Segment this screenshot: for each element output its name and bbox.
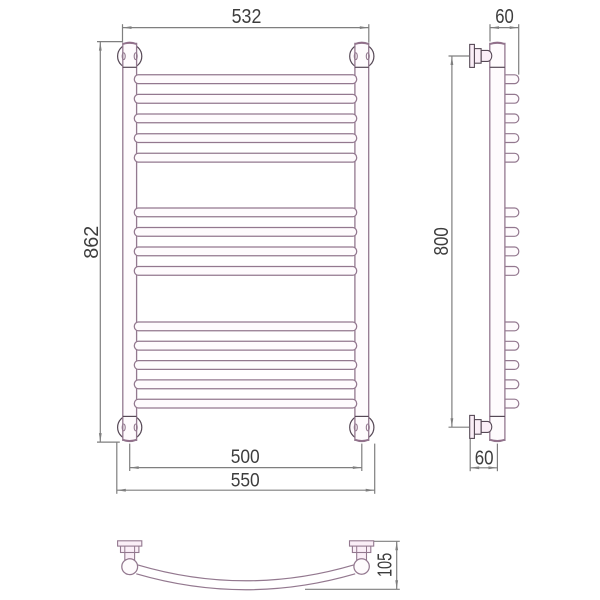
- svg-text:500: 500: [231, 447, 260, 468]
- svg-text:862: 862: [81, 226, 103, 259]
- svg-text:550: 550: [231, 471, 260, 492]
- svg-text:60: 60: [495, 6, 514, 28]
- svg-text:800: 800: [431, 227, 453, 255]
- svg-text:60: 60: [475, 447, 494, 469]
- svg-text:532: 532: [232, 6, 262, 28]
- svg-text:105: 105: [375, 553, 397, 577]
